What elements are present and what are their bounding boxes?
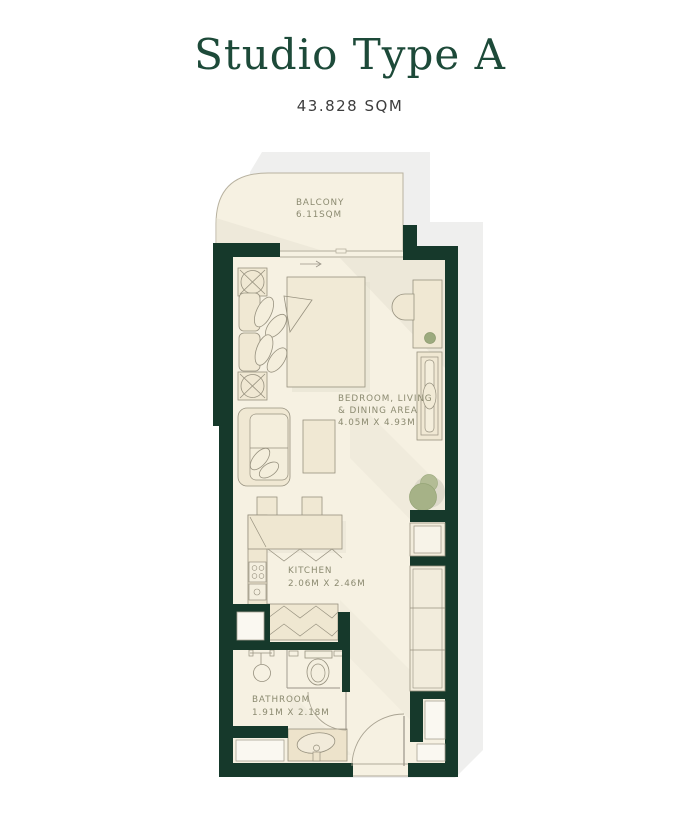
bathroom-dimensions: 1.91M X 2.18M xyxy=(252,708,330,718)
nightstand-1 xyxy=(238,268,267,296)
kitchen-dimensions: 2.06M X 2.46M xyxy=(288,579,366,589)
entry-niche-1 xyxy=(425,701,445,739)
desk xyxy=(413,280,442,348)
coffee-table xyxy=(303,420,335,473)
sofa xyxy=(238,408,290,486)
sink-icon xyxy=(249,584,266,600)
bedroom-dimensions: 4.05M X 4.93M xyxy=(338,418,416,428)
desk-plant-icon xyxy=(425,333,436,344)
laundry-niche xyxy=(236,740,284,761)
balcony-area-value: 6.11SQM xyxy=(296,210,342,220)
bathroom-label: BATHROOM xyxy=(252,695,310,705)
balcony-label: BALCONY xyxy=(296,198,344,208)
desk-chair xyxy=(392,294,414,320)
vanity-sink xyxy=(288,729,347,761)
floor-plan: BALCONY 6.11SQM BEDROOM, LIVING & DINING… xyxy=(0,0,700,814)
entry-wardrobe xyxy=(410,566,445,691)
bedroom-label-line1: BEDROOM, LIVING xyxy=(338,394,433,404)
bedroom-label-line2: & DINING AREA xyxy=(338,406,418,416)
stove-icon xyxy=(249,562,266,582)
kitchen-niche xyxy=(237,612,264,640)
kitchen-label: KITCHEN xyxy=(288,566,332,576)
kitchen-island xyxy=(267,604,338,640)
entry-cabinet xyxy=(410,523,445,556)
entry-niche-2 xyxy=(417,744,445,761)
nightstand-2 xyxy=(238,372,267,400)
